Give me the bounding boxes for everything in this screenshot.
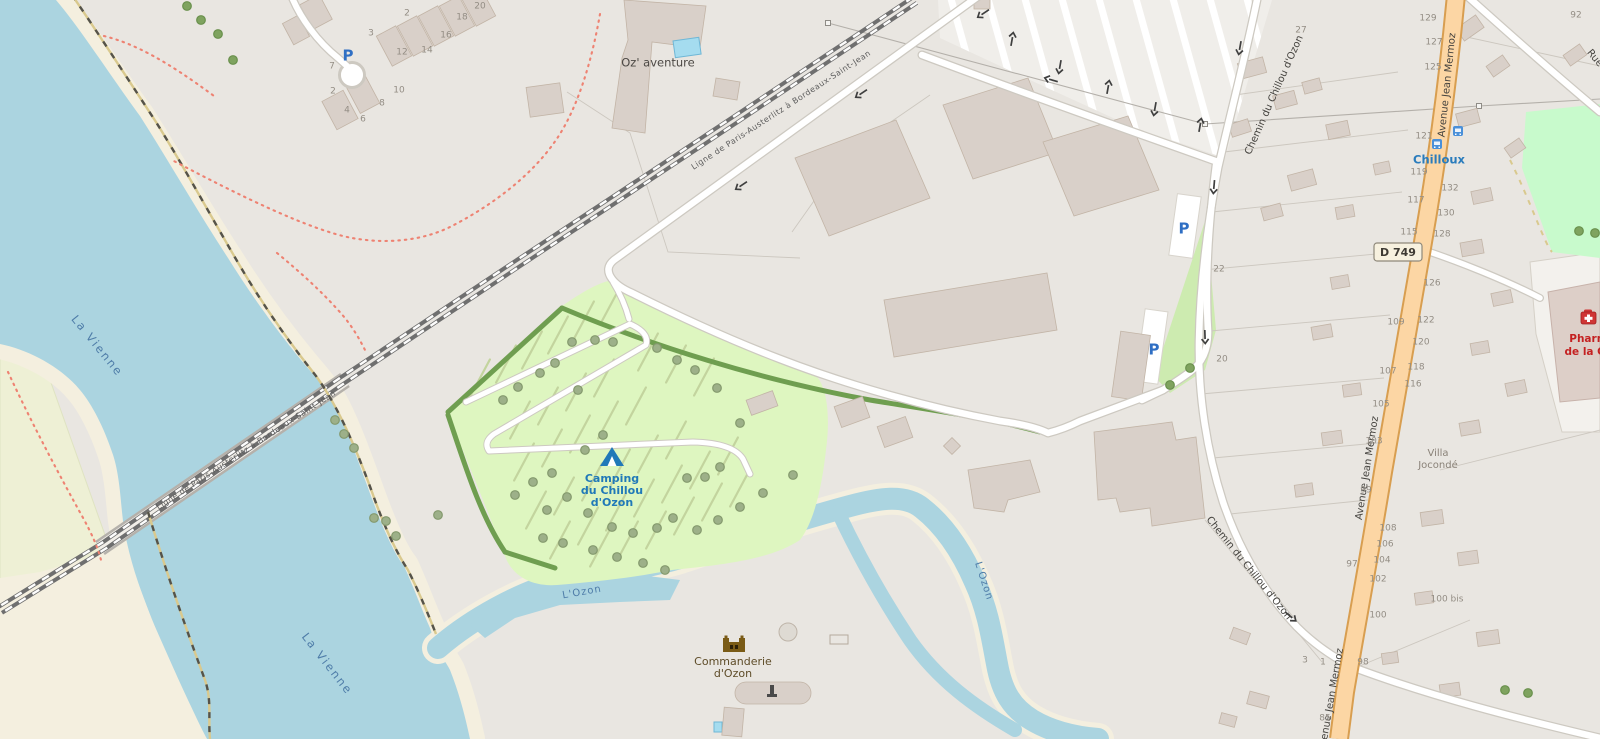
house-number: 22 [1213,265,1224,275]
house [1476,630,1500,647]
tree-icon [229,56,238,65]
map-svg: D 749 P P P La Vienne La Vienne L'Ozon L… [0,0,1600,739]
tree-icon [499,396,508,405]
tree-icon [529,478,538,487]
house-number: 14 [421,46,433,56]
house-number: 109 [1387,318,1404,328]
house-number: 116 [1404,380,1421,390]
house-number: 119 [1410,168,1427,178]
house-number: 103 [1365,437,1382,447]
house-number: 100 bis [1431,595,1464,605]
house-number: 92 [1570,11,1581,21]
pylon-icon [1477,104,1482,109]
parking-icon: P [1149,341,1160,359]
tree-icon [183,2,192,11]
house-number: 132 [1441,184,1458,194]
tree-icon [340,430,349,439]
poi-label-oz-aventure: Oz' aventure [621,56,694,70]
tree-icon [382,517,391,526]
bus-stop-icon [1432,139,1442,149]
tree-icon [759,489,768,498]
tree-icon [683,474,692,483]
house [1381,651,1398,664]
tree-icon [736,419,745,428]
house-number: 6 [360,115,366,125]
tree-icon [1186,364,1195,373]
house-number: 12 [396,48,407,58]
poi-label-commanderie: d'Ozon [714,667,752,680]
shed [713,78,740,100]
tree-icon [584,509,593,518]
tree-icon [574,386,583,395]
tree-icon [599,431,608,440]
tree-icon [608,523,617,532]
house-number: 27 [1295,26,1306,36]
house-number: 106 [1376,540,1393,550]
tree-icon [1166,381,1175,390]
house-number: 18 [456,13,468,23]
parking-icon: P [1179,220,1190,238]
tree-icon [539,534,548,543]
house-number: 127 [1425,38,1442,48]
house-number: 125 [1424,63,1441,73]
house-number: 20 [1216,355,1228,365]
tree-icon [669,514,678,523]
villa-label: Jocondé [1417,459,1458,471]
tree-icon [331,416,340,425]
house-number: 122 [1417,316,1434,326]
house-number: 85 [1319,714,1330,724]
house-number: 20 [474,2,486,12]
tree-icon [661,566,670,575]
tree-icon [1591,229,1600,238]
house-number: 97 [1346,560,1357,570]
tree-icon [1501,686,1510,695]
tree-icon [673,356,682,365]
house [1321,430,1343,446]
tree-icon [581,446,590,455]
tree-icon [511,491,520,500]
house-number: 102 [1369,575,1386,585]
tree-icon [589,546,598,555]
tree-icon [536,369,545,378]
house-number: 115 [1400,228,1417,238]
house-number: 7 [329,62,335,72]
tree-icon [568,338,577,347]
house [1294,483,1313,497]
tree-icon [1524,689,1533,698]
bus-stop-label: Chilloux [1413,153,1466,167]
house [526,83,564,117]
tree-icon [197,16,206,25]
tree-icon [691,366,700,375]
tree-icon [563,493,572,502]
house-number: 8 [379,99,385,109]
house-number: 118 [1407,363,1424,373]
pharmacy-label: de la Che [1565,346,1600,358]
tree-icon [716,463,725,472]
house-number: 2 [330,87,336,97]
tree-icon [713,384,722,393]
tree-icon [1575,227,1584,236]
house-number: 10 [393,86,405,96]
house-number: 107 [1379,367,1396,377]
house-number: 100 [1369,611,1386,621]
house [1457,550,1479,566]
pylon-icon [826,21,831,26]
tree-icon [653,344,662,353]
house [1420,510,1444,527]
house-number: 108 [1379,524,1396,534]
tree-icon [214,30,223,39]
house-number: 3 [1302,656,1308,666]
house-number: 3 [368,29,374,39]
tree-icon [789,471,798,480]
house-number: 1 [1320,658,1326,668]
parking-icon: P [343,47,354,65]
house [1342,383,1361,397]
house-number: 104 [1373,556,1390,566]
tree-icon [434,511,443,520]
tree-icon [591,336,600,345]
house-number: 120 [1412,338,1429,348]
small-pool [714,722,722,732]
house-number: 130 [1437,209,1454,219]
poi-label-camping: d'Ozon [591,496,633,509]
tree-icon [350,444,359,453]
house-number: 126 [1423,279,1440,289]
villa-label: Villa [1427,448,1448,459]
house [1330,275,1350,290]
tree-icon [701,473,710,482]
house-number: 117 [1407,196,1424,206]
house-number: 98 [1357,658,1369,668]
tree-icon [639,559,648,568]
tree-icon [392,532,401,541]
round-structure [779,623,797,641]
tree-icon [629,529,638,538]
tree-icon [559,539,568,548]
house [1335,205,1355,220]
house-number: 129 [1419,14,1436,24]
tree-icon [370,514,379,523]
tree-icon [714,516,723,525]
tree-icon [653,524,662,533]
tree-icon [609,338,618,347]
house [1470,341,1490,356]
map-canvas[interactable]: D 749 P P P La Vienne La Vienne L'Ozon L… [0,0,1600,739]
road-ref-badge: D 749 [1374,243,1422,261]
pharmacy-icon [1581,310,1596,325]
house-number: 16 [440,31,452,41]
tree-icon [514,383,523,392]
bus-stop-icon [1453,126,1463,136]
tree-icon [551,359,560,368]
house-number: 105 [1372,400,1389,410]
house-number: 121 [1415,132,1432,142]
house-number: 99 [1360,486,1372,496]
tree-icon [548,469,557,478]
house-number: 128 [1433,230,1450,240]
house [722,707,744,737]
tree-icon [543,506,552,515]
tree-icon [736,503,745,512]
house-number: 4 [344,106,350,116]
tree-icon [613,553,622,562]
house-number: 2 [404,9,410,19]
road-ref-text: D 749 [1380,246,1416,259]
pharmacy-label: Pharma [1569,333,1600,345]
tree-icon [693,526,702,535]
